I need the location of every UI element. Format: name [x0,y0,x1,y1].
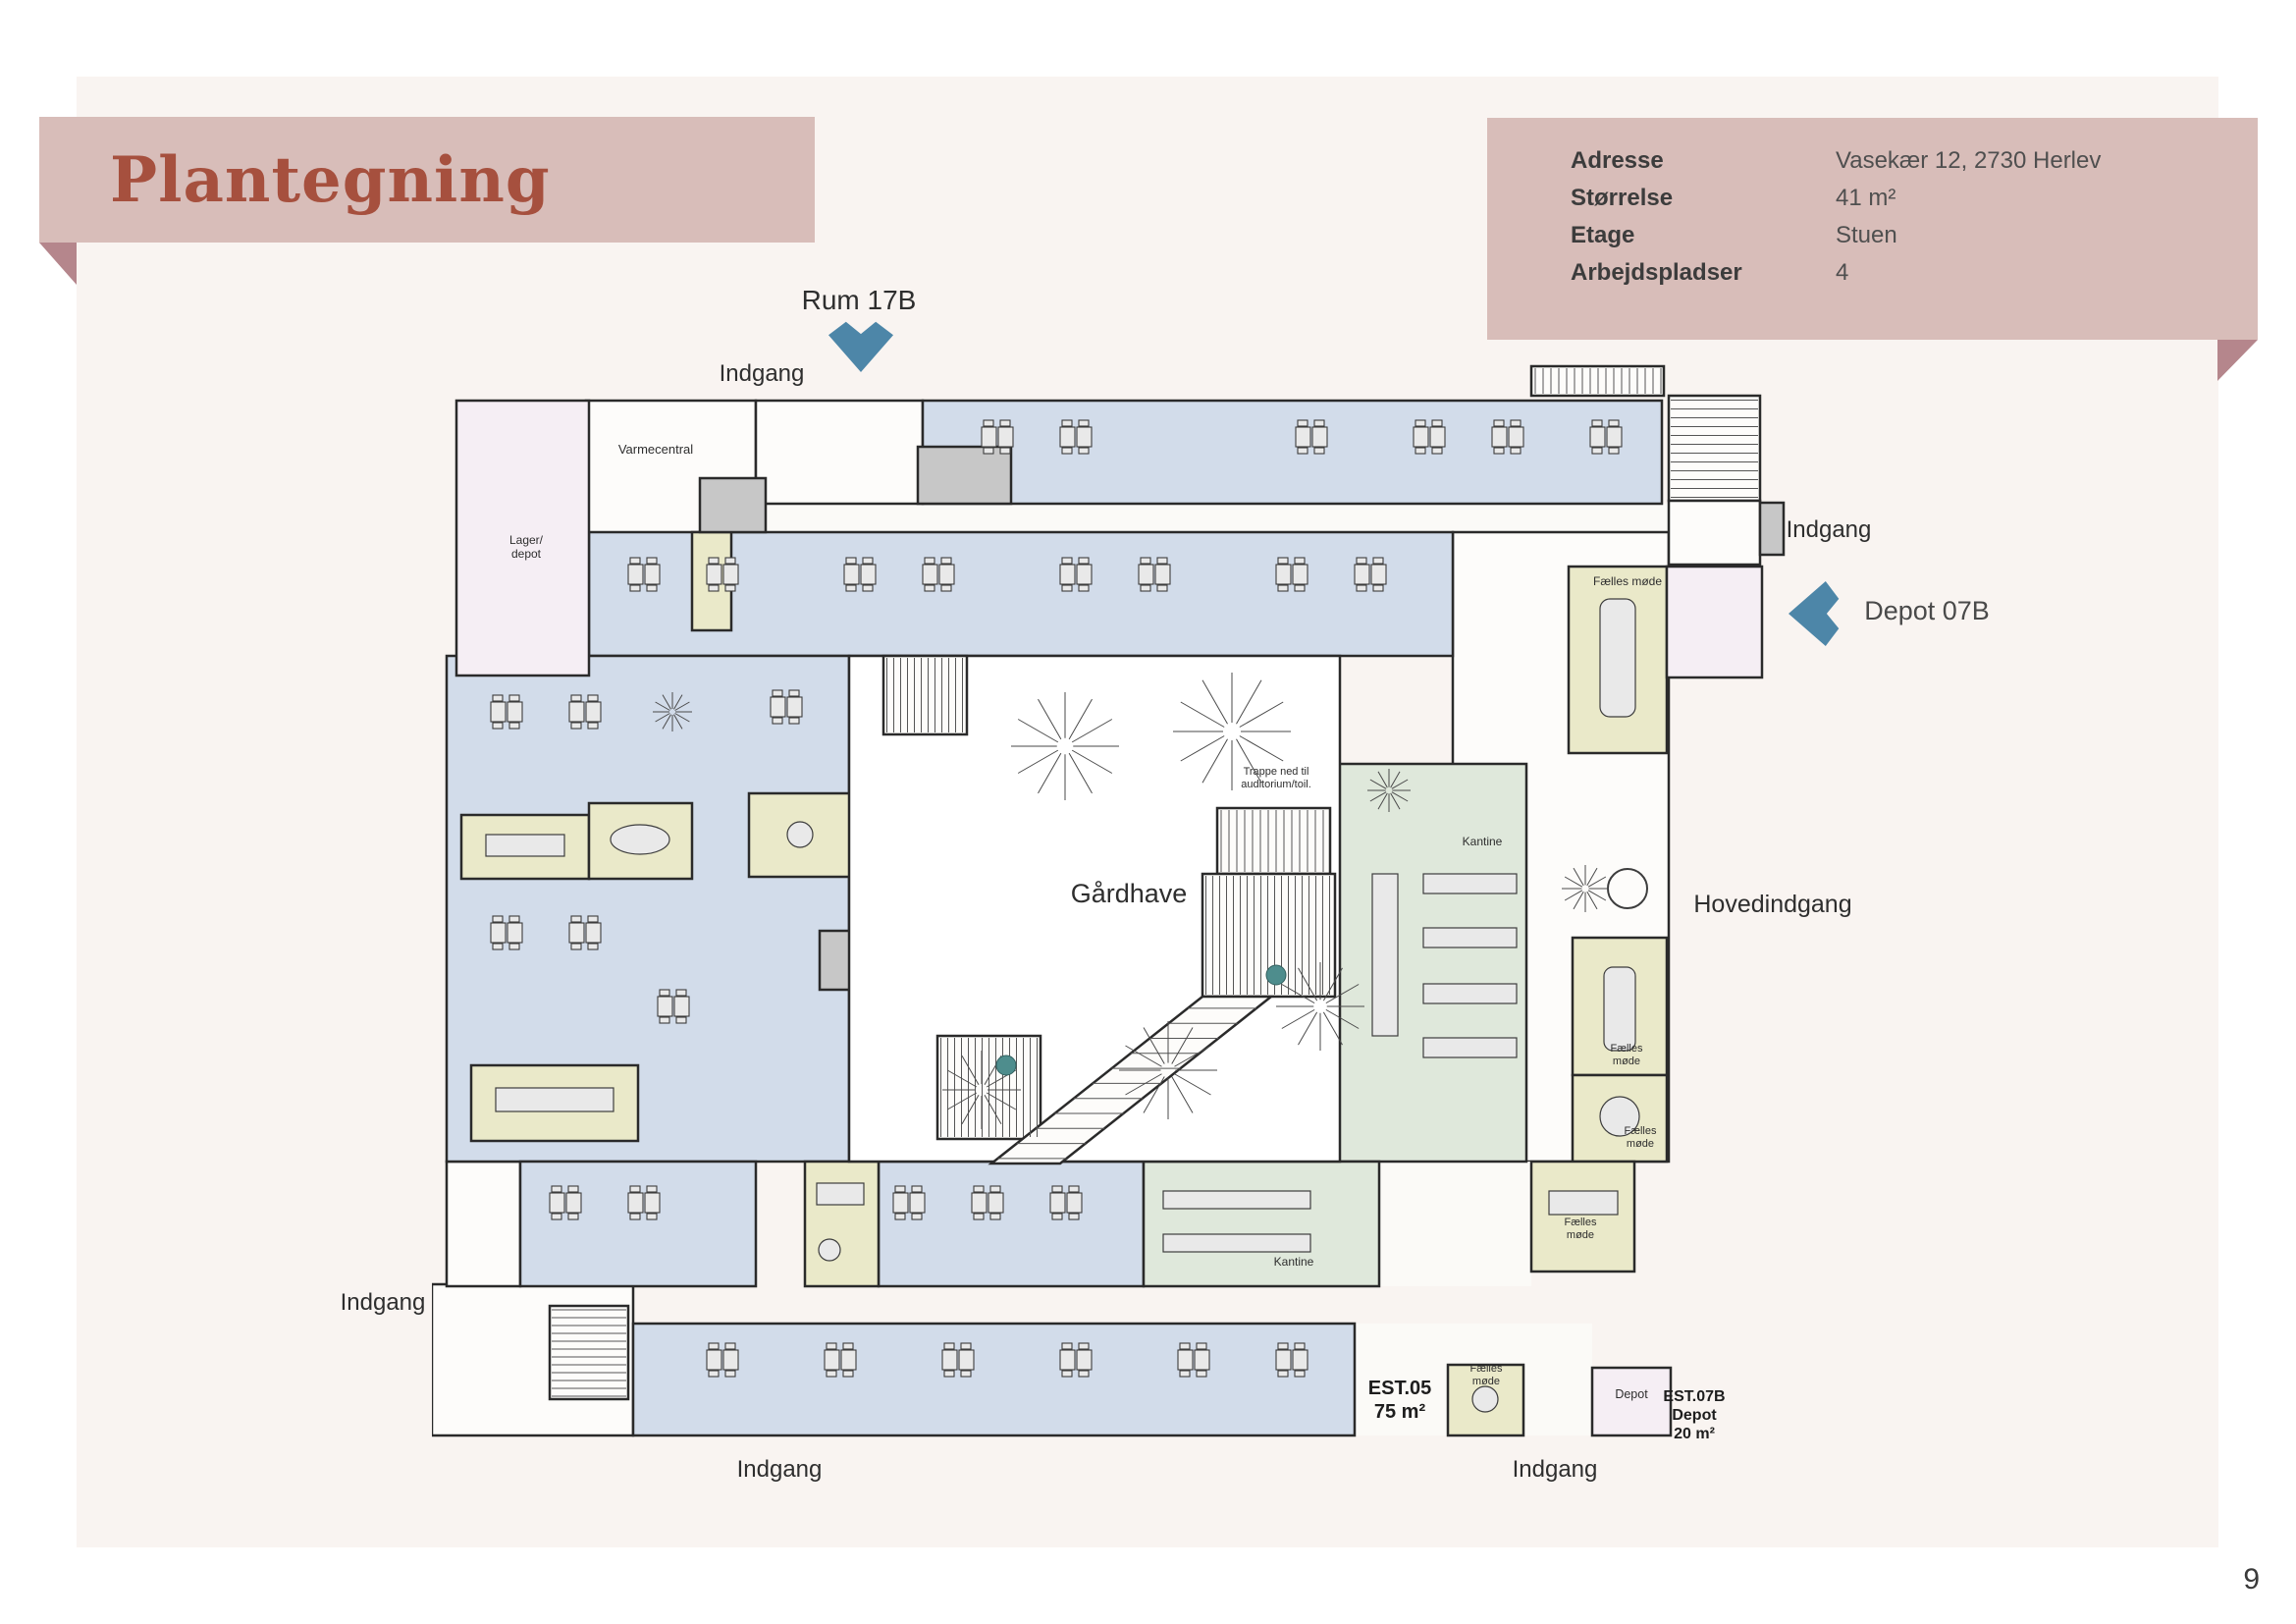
kantine-bottom-table-2 [1163,1234,1310,1252]
kantine-column [1330,764,1526,1162]
table-bottom-round [1472,1386,1498,1412]
table-midright [1549,1191,1618,1215]
wc-block-2 [918,447,1011,504]
info-row-value: Stuen [1836,224,1897,247]
office-mid-left [520,1162,756,1286]
info-row-label: Etage [1571,224,1836,247]
office-mid-right [879,1162,1144,1286]
info-row: AdresseVasekær 12, 2730 Herlev [1571,149,2258,173]
page-title: Plantegning [110,143,551,217]
kantine-table-long [1372,874,1398,1036]
courtyard-deck-1 [883,656,967,734]
courtyard-stair [1217,808,1330,874]
room-depot-07b [1667,567,1762,677]
corridor-top [756,504,1669,532]
info-row-value: 4 [1836,261,1848,285]
meeting-room-midright [1531,1162,1634,1272]
stairwell-topright [1669,396,1760,501]
info-row-value: Vasekær 12, 2730 Herlev [1836,149,2101,173]
room-office-white [756,401,923,504]
info-row: Størrelse41 m² [1571,187,2258,210]
vestibule-left [447,1162,520,1286]
plan-rooms [432,366,1784,1435]
info-row-label: Størrelse [1571,187,1836,210]
info-row: Arbejdspladser4 [1571,261,2258,285]
kantine-bottom-table-1 [1163,1191,1310,1209]
kantine-table-1 [1423,874,1517,893]
kantine-table-3 [1423,984,1517,1003]
info-row-value: 41 m² [1836,187,1896,210]
office-band-top [923,401,1662,504]
room-depot-bottom [1592,1368,1671,1435]
info-row-label: Arbejdspladser [1571,261,1836,285]
kantine-table-2 [1423,928,1517,947]
page-number: 9 [2199,1563,2260,1597]
table-leftwing-c [787,822,813,847]
entrance-vestibule-topright [1669,501,1760,565]
table-leftwing-d [496,1088,614,1111]
table-midband-khaki [819,1239,840,1261]
info-panel: AdresseVasekær 12, 2730 HerlevStørrelse4… [1487,118,2258,340]
table-topright [1600,599,1635,717]
title-banner: Plantegning [39,117,815,243]
floor-plan [432,353,1796,1468]
info-panel-fold [2217,340,2258,381]
info-row-label: Adresse [1571,149,1836,173]
stairs-bottom-left [550,1306,628,1399]
office-band-bottom [633,1324,1355,1435]
meeting-room-midband [805,1162,879,1286]
table-right1 [1604,967,1635,1051]
kantine-table-4 [1423,1038,1517,1057]
desk-midband-khaki [817,1183,864,1205]
floor-plan-drawing [432,353,1796,1468]
title-banner-fold [39,243,77,285]
entrance-mat-right [1760,503,1784,555]
table-leftwing-a [486,835,564,856]
table-leftwing-b [611,825,669,854]
corridor-mid [1379,1162,1531,1286]
table-right2 [1600,1097,1639,1136]
kantine-bottom [1144,1162,1379,1286]
document-page: { "page": { "title": "Plantegning", "pag… [0,0,2296,1624]
info-row: EtageStuen [1571,224,2258,247]
wc-block-1 [700,478,766,532]
room-lager-depot [456,401,589,676]
